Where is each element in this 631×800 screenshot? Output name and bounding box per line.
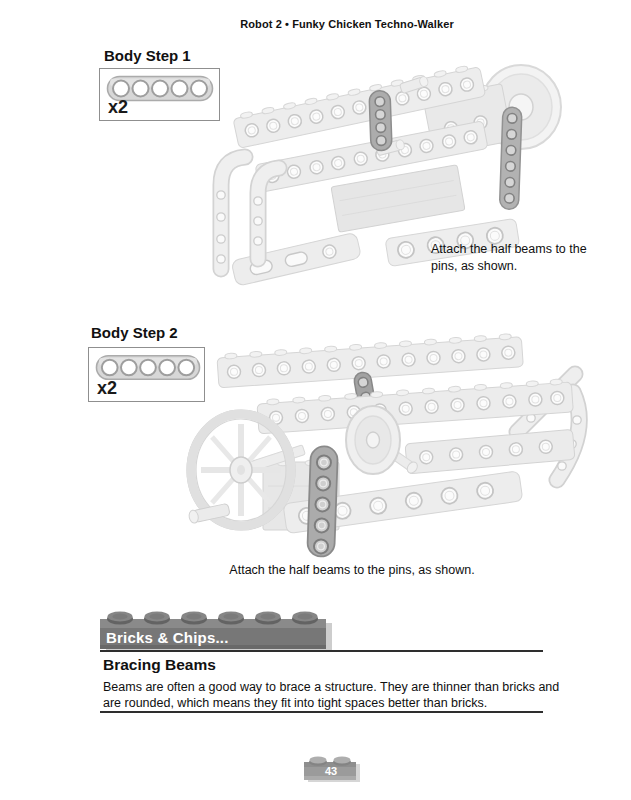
callout-body: Beams are often a good way to brace a st… xyxy=(103,679,561,712)
divider-rule-bottom xyxy=(100,711,543,713)
highlighted-half-beam xyxy=(307,446,338,557)
step2-caption: Attach the half beams to the pins, as sh… xyxy=(120,562,584,579)
book-page: Robot 2 • Funky Chicken Techno-Walker Bo… xyxy=(0,0,631,800)
bricks-and-chips-banner: Bricks & Chips... xyxy=(100,609,340,653)
page-number: 43 xyxy=(303,765,359,777)
step1-parts-box: x2 xyxy=(99,68,220,121)
highlighted-half-beam xyxy=(369,90,392,151)
page-number-brick: 43 xyxy=(303,754,363,784)
highlighted-half-beam xyxy=(499,107,522,210)
page-header: Robot 2 • Funky Chicken Techno-Walker xyxy=(63,18,631,30)
banner-label: Bricks & Chips... xyxy=(106,629,229,646)
step2-quantity: x2 xyxy=(97,378,117,399)
step1-caption: Attach the half beams to the pins, as sh… xyxy=(431,241,595,274)
step1-quantity: x2 xyxy=(108,97,128,118)
divider-rule-top xyxy=(100,650,543,652)
step1-title: Body Step 1 xyxy=(104,47,191,64)
assembly-illustration-step2 xyxy=(165,332,595,564)
callout-heading: Bracing Beams xyxy=(103,656,216,674)
